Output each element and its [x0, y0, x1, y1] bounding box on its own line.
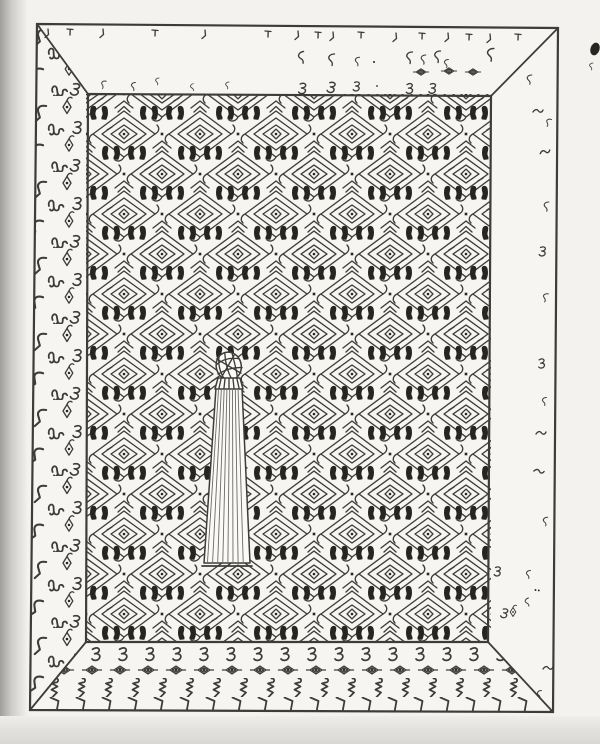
page-bottom-edge: [0, 716, 600, 744]
scanned-page: [0, 0, 600, 744]
floor-panel: [40, 645, 555, 712]
figure-svg: [0, 0, 600, 744]
gutter-shadow: [0, 0, 27, 744]
back-wall-panel: [86, 94, 491, 642]
floor-zigzag-row: [40, 678, 555, 697]
floor-curl-row: [40, 645, 555, 662]
left-wall-panel: [28, 20, 90, 715]
floor-eye-row: [40, 662, 555, 678]
